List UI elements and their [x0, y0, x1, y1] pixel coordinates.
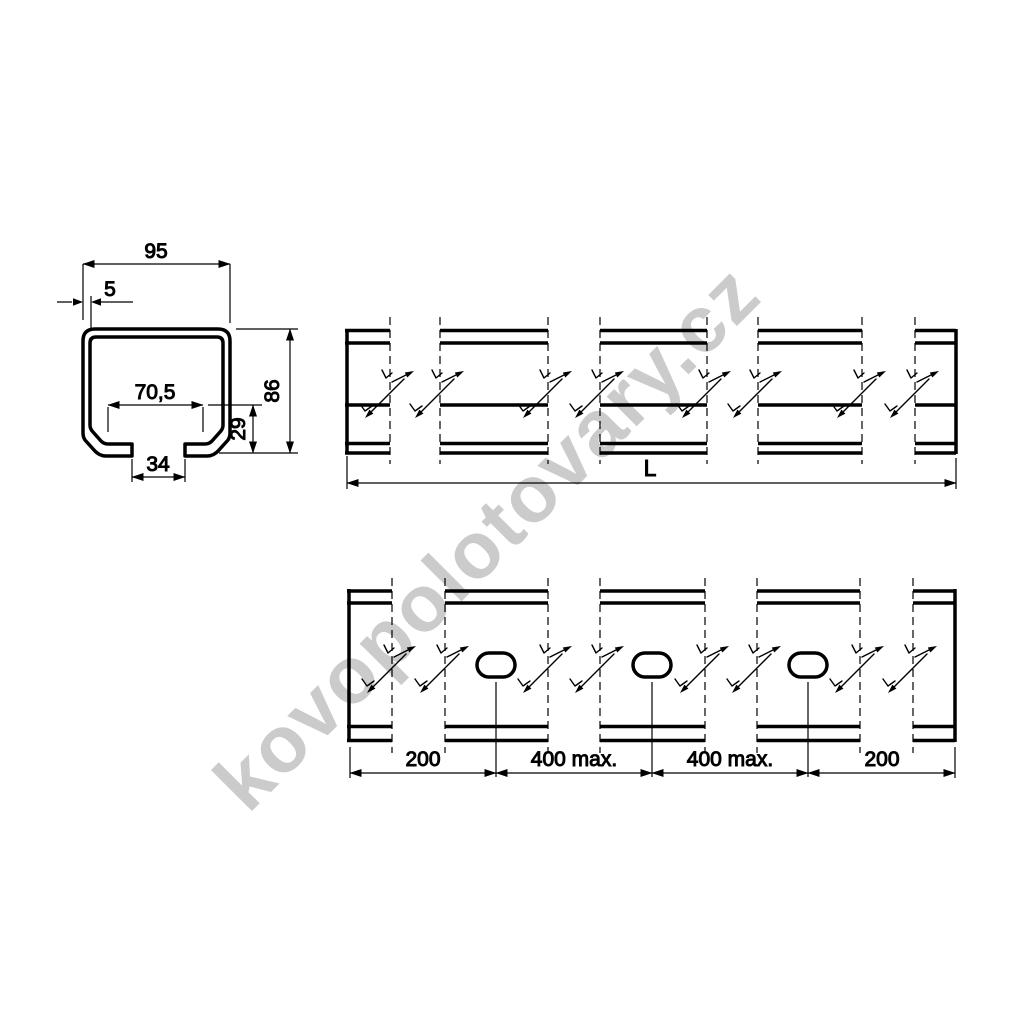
dim-outer-width-label: 95 — [144, 240, 167, 263]
dim-end-offset-right-label: 200 — [864, 748, 899, 771]
technical-drawing-canvas: kovopolotovary.cz 95 5 70,5 29 — [0, 0, 1024, 1024]
dim-end-offset-left-label: 200 — [405, 748, 440, 771]
dim-wall-thickness-label: 5 — [104, 278, 116, 301]
technical-drawing-page: kovopolotovary.cz 95 5 70,5 29 — [0, 0, 1024, 1024]
dim-length-label: L — [644, 455, 657, 481]
dim-hole-pitch-right-label: 400 max. — [687, 748, 773, 771]
dim-height-label: 86 — [261, 379, 284, 402]
dim-hole-pitch-left-label: 400 max. — [531, 748, 617, 771]
dim-lip-height-label: 29 — [227, 417, 250, 440]
dim-slot-gap-label: 34 — [146, 453, 170, 476]
dim-inner-width-label: 70,5 — [135, 381, 176, 404]
